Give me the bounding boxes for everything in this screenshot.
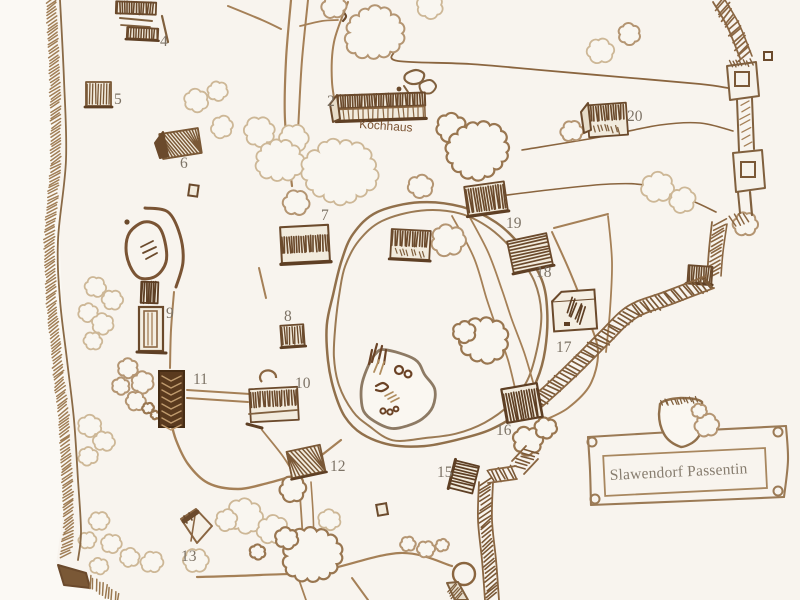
svg-text:19: 19 xyxy=(506,215,522,232)
svg-text:4: 4 xyxy=(160,33,168,50)
svg-text:10: 10 xyxy=(295,375,311,392)
svg-text:9: 9 xyxy=(166,305,174,322)
svg-text:15: 15 xyxy=(437,464,453,481)
svg-text:6: 6 xyxy=(180,155,188,172)
svg-text:18: 18 xyxy=(536,264,552,281)
svg-text:11: 11 xyxy=(193,371,208,388)
svg-text:12: 12 xyxy=(330,458,346,475)
svg-text:13: 13 xyxy=(181,548,197,565)
svg-text:8: 8 xyxy=(284,308,292,325)
svg-text:17: 17 xyxy=(556,339,572,356)
svg-text:20: 20 xyxy=(627,108,643,125)
svg-text:2: 2 xyxy=(327,93,335,110)
svg-text:16: 16 xyxy=(496,422,512,439)
svg-text:7: 7 xyxy=(321,207,329,224)
svg-text:5: 5 xyxy=(114,91,122,108)
